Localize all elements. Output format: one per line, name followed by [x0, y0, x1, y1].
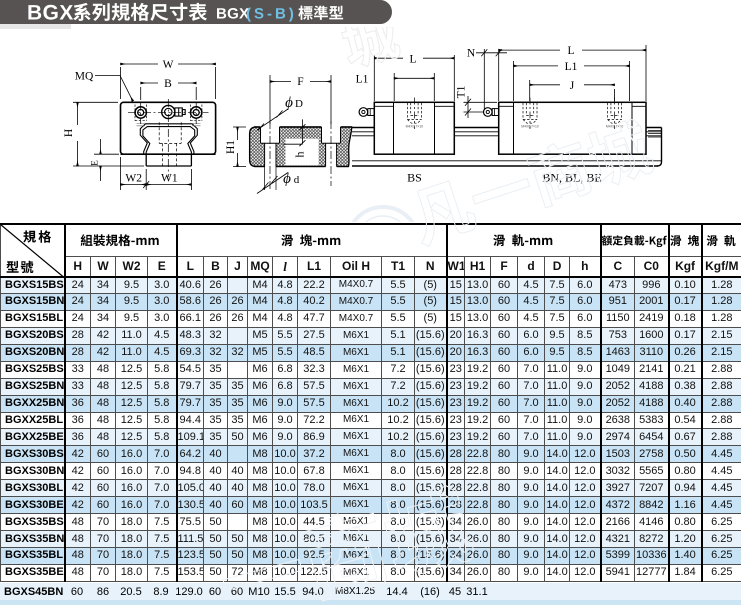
svg-text:h: h	[293, 152, 307, 158]
svg-text:J: J	[570, 80, 575, 92]
svg-text:L: L	[567, 45, 574, 57]
svg-text:H: H	[63, 129, 75, 137]
svg-text:L: L	[409, 53, 416, 65]
svg-text:W2: W2	[125, 173, 142, 185]
svg-text:D: D	[295, 98, 303, 110]
svg-text:T1: T1	[456, 85, 468, 98]
svg-text:BS: BS	[407, 171, 422, 185]
svg-text:d: d	[294, 174, 300, 186]
svg-text:MQ: MQ	[75, 71, 94, 83]
svg-text:N: N	[467, 48, 476, 60]
svg-text:M4X0.7×10: M4X0.7×10	[406, 124, 424, 128]
svg-text:H1: H1	[225, 140, 237, 154]
svg-text:W1: W1	[161, 173, 178, 185]
svg-text:W: W	[163, 59, 174, 71]
svg-text:BN, BL, BE: BN, BL, BE	[542, 171, 601, 185]
svg-text:B: B	[164, 78, 172, 90]
svg-text:E: E	[90, 160, 100, 166]
svg-text:M4X0.7×10: M4X0.7×10	[521, 124, 539, 128]
svg-text:M4X0.7×10: M4X0.7×10	[606, 124, 624, 128]
svg-text:L1: L1	[356, 73, 369, 85]
svg-text:L1: L1	[565, 61, 578, 73]
svg-text:F: F	[297, 76, 303, 88]
svg-text:ϕ: ϕ	[285, 95, 293, 111]
